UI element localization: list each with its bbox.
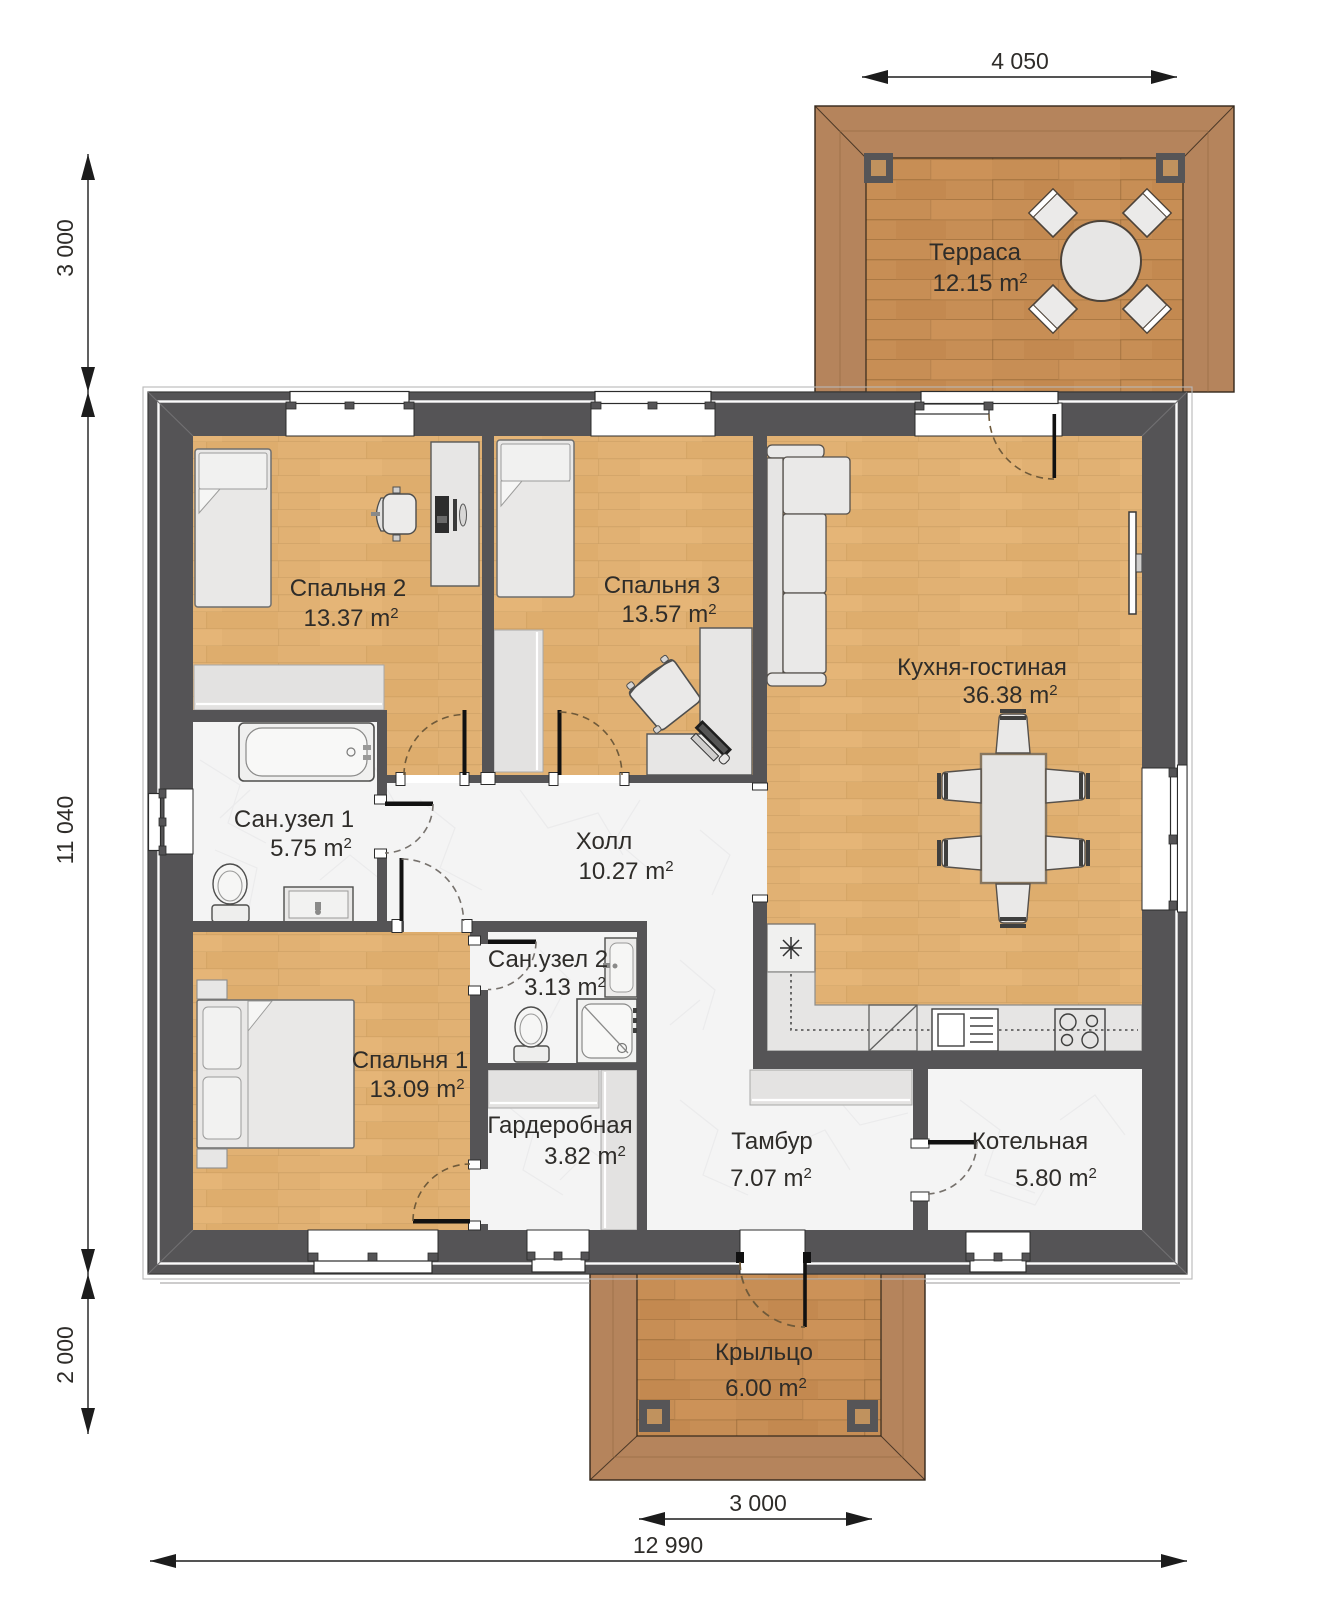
svg-text:3 000: 3 000 [729, 1490, 787, 1516]
svg-text:Холл: Холл [576, 828, 633, 855]
svg-text:2 000: 2 000 [52, 1326, 78, 1384]
svg-text:13.57 m2: 13.57 m2 [621, 601, 716, 628]
svg-text:Терраса: Терраса [929, 239, 1022, 266]
svg-text:4 050: 4 050 [991, 48, 1049, 74]
svg-text:Тамбур: Тамбур [731, 1128, 812, 1155]
svg-text:6.00 m2: 6.00 m2 [725, 1375, 807, 1402]
svg-text:Гардеробная: Гардеробная [487, 1112, 632, 1139]
svg-text:12.15 m2: 12.15 m2 [932, 270, 1027, 297]
svg-text:Крыльцо: Крыльцо [715, 1339, 813, 1366]
svg-text:3.82 m2: 3.82 m2 [544, 1143, 626, 1170]
svg-text:13.09 m2: 13.09 m2 [369, 1076, 464, 1103]
svg-text:Сан.узел 2: Сан.узел 2 [488, 946, 608, 973]
svg-text:11 040: 11 040 [52, 796, 78, 865]
svg-text:5.80 m2: 5.80 m2 [1015, 1165, 1097, 1192]
svg-text:3 000: 3 000 [52, 219, 78, 277]
svg-text:7.07 m2: 7.07 m2 [730, 1165, 812, 1192]
svg-text:Сан.узел 1: Сан.узел 1 [234, 806, 354, 833]
svg-text:Кухня-гостиная: Кухня-гостиная [897, 654, 1067, 681]
svg-text:Котельная: Котельная [972, 1128, 1088, 1155]
svg-text:36.38 m2: 36.38 m2 [962, 682, 1057, 709]
svg-text:10.27 m2: 10.27 m2 [578, 858, 673, 885]
svg-text:Спальня 2: Спальня 2 [290, 575, 406, 602]
svg-text:13.37 m2: 13.37 m2 [303, 605, 398, 632]
svg-text:5.75 m2: 5.75 m2 [270, 835, 352, 862]
svg-text:Спальня 3: Спальня 3 [604, 572, 720, 599]
svg-text:12 990: 12 990 [633, 1532, 703, 1558]
svg-text:Спальня 1: Спальня 1 [352, 1047, 468, 1074]
svg-text:3.13 m2: 3.13 m2 [524, 974, 606, 1001]
